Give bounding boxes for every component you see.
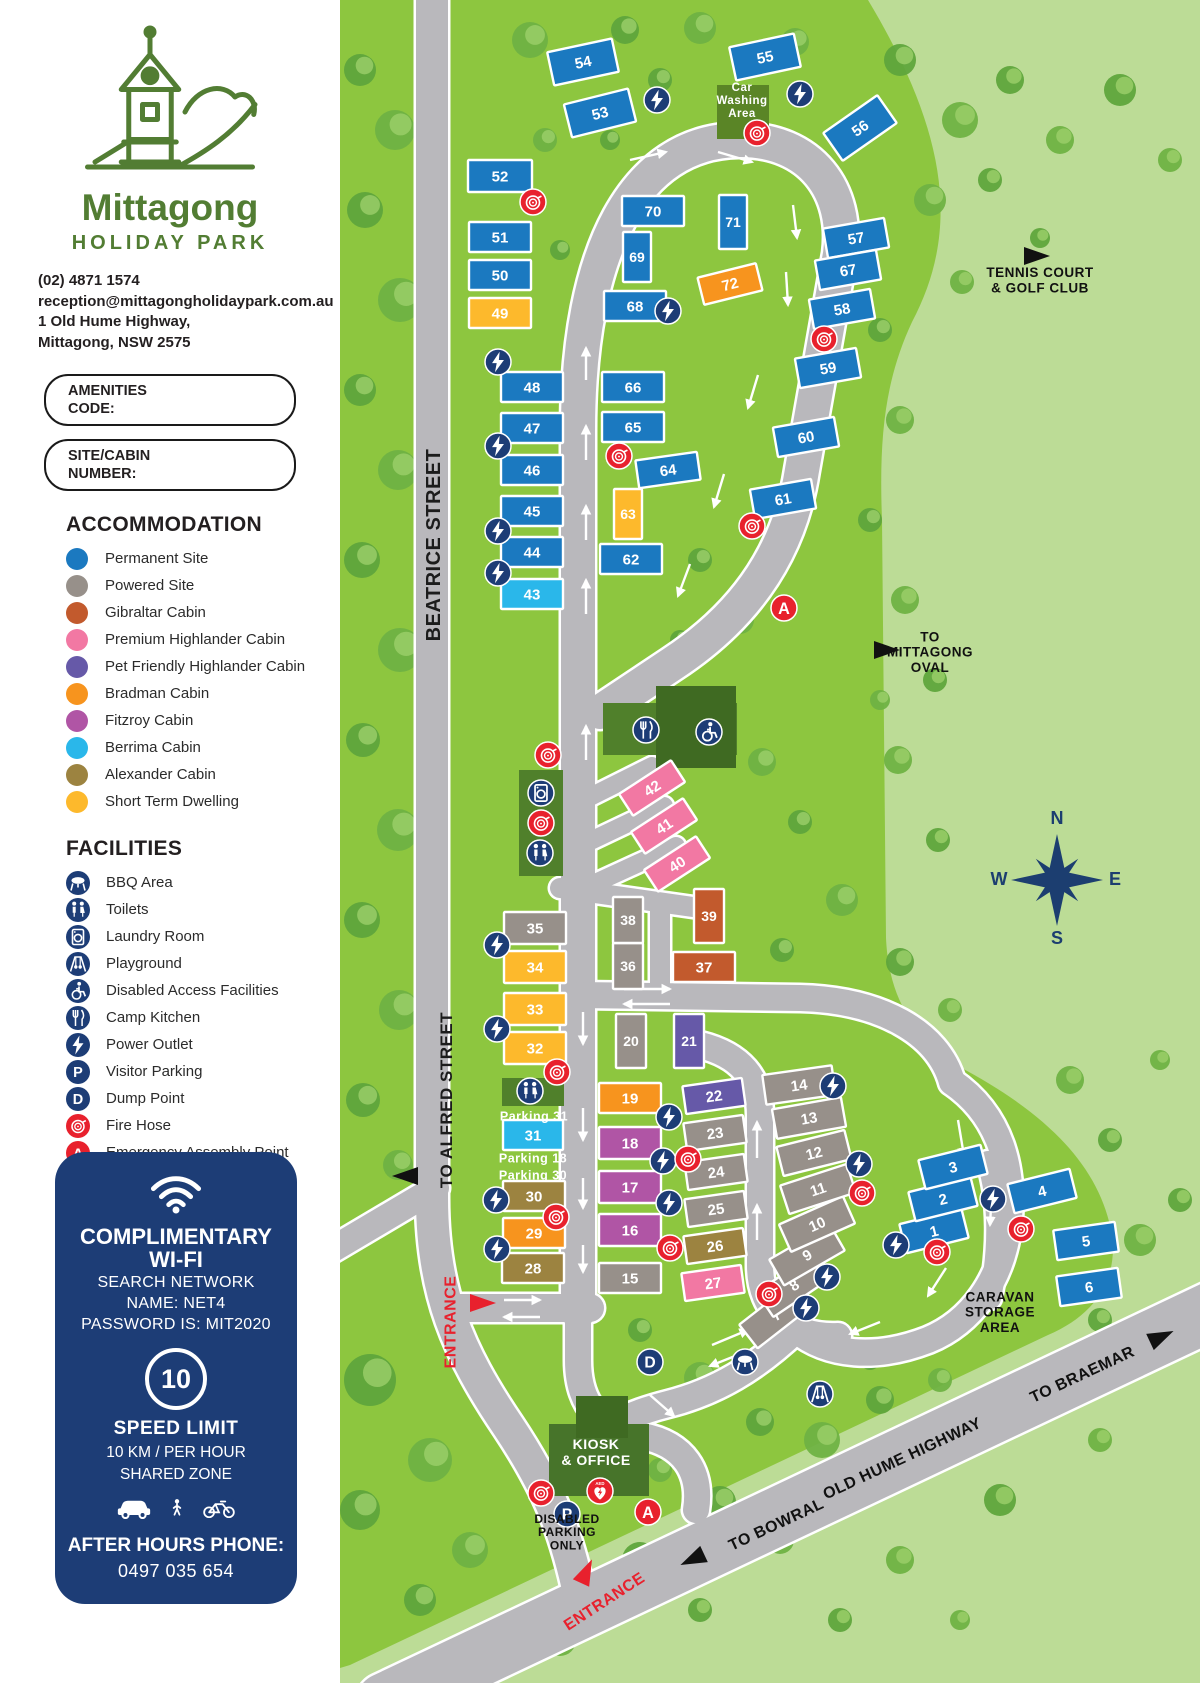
speed-limit-title: SPEED LIMIT [55, 1418, 297, 1440]
fire-icon [811, 326, 837, 352]
park-map-page: Mittagong HOLIDAY PARK (02) 4871 1574 re… [0, 0, 1200, 1683]
accommodation-item: Permanent Site [66, 545, 340, 572]
site-number-field: SITE/CABIN NUMBER: [44, 439, 296, 491]
svg-text:68: 68 [627, 298, 644, 315]
svg-text:64: 64 [659, 461, 679, 480]
facility-label: Playground [106, 955, 182, 972]
fire-icon [849, 1180, 875, 1206]
clock-tower-logo-icon [70, 22, 270, 182]
facility-item: Laundry Room [66, 923, 340, 950]
svg-text:29: 29 [526, 1225, 543, 1242]
facility-item: Fire Hose [66, 1112, 340, 1139]
accommodation-item: Pet Friendly Highlander Cabin [66, 653, 340, 680]
svg-text:26: 26 [706, 1237, 725, 1256]
fire-icon [528, 810, 554, 836]
toilets-icon [527, 840, 553, 866]
fire-icon [756, 1281, 782, 1307]
site-63: 63 [614, 489, 642, 539]
brand-name: Mittagong [0, 189, 340, 226]
email: reception@mittagongholidaypark.com.au [38, 292, 340, 313]
site-35: 35 [504, 912, 566, 944]
svg-text:46: 46 [524, 462, 541, 479]
fire-icon [535, 742, 561, 768]
svg-text:71: 71 [725, 214, 741, 230]
svg-text:37: 37 [696, 959, 713, 976]
site-34: 34 [504, 951, 566, 983]
after-hours-phone: 0497 035 654 [55, 1561, 297, 1582]
svg-text:62: 62 [623, 551, 640, 568]
fire-icon [528, 1480, 554, 1506]
power-icon [656, 1190, 682, 1216]
fire-icon [1008, 1216, 1034, 1242]
power-icon [66, 1033, 90, 1057]
svg-text:43: 43 [524, 586, 541, 603]
assembly-icon: A [771, 595, 797, 621]
power-icon [793, 1295, 819, 1321]
disabled-icon [696, 719, 722, 745]
site-50: 50 [469, 260, 531, 290]
accommodation-label: Alexander Cabin [105, 766, 216, 783]
svg-text:D: D [644, 1354, 655, 1371]
site-51: 51 [469, 222, 531, 252]
car-icon [115, 1496, 153, 1519]
power-icon [820, 1073, 846, 1099]
svg-text:50: 50 [492, 267, 509, 284]
svg-text:58: 58 [832, 300, 851, 320]
wifi-line-2: NAME: NET4 [55, 1295, 297, 1313]
contact-block: (02) 4871 1574 reception@mittagongholida… [38, 271, 340, 354]
fire-icon [520, 189, 546, 215]
logo [0, 22, 340, 187]
accommodation-item: Fitzroy Cabin [66, 707, 340, 734]
accommodation-swatch [66, 575, 88, 597]
accommodation-heading: ACCOMMODATION [66, 513, 340, 537]
site-28: 28 [502, 1253, 564, 1283]
site-45: 45 [501, 496, 563, 526]
shared-zone-icons [55, 1496, 297, 1519]
svg-text:44: 44 [524, 544, 541, 561]
site-48: 48 [501, 372, 563, 402]
facility-label: Visitor Parking [106, 1063, 202, 1080]
site-47: 47 [501, 413, 563, 443]
site-43: 43 [501, 579, 563, 609]
accommodation-swatch [66, 791, 88, 813]
map-label: TO ALFRED STREET [437, 1012, 456, 1188]
speed-limit-line-1: 10 KM / PER HOUR [55, 1444, 297, 1462]
accommodation-item: Short Term Dwelling [66, 788, 340, 815]
power-icon [846, 1151, 872, 1177]
wifi-icon [144, 1170, 208, 1214]
power-icon [485, 560, 511, 586]
facility-item: Playground [66, 950, 340, 977]
svg-text:22: 22 [705, 1087, 724, 1106]
accommodation-item: Gibraltar Cabin [66, 599, 340, 626]
svg-text:34: 34 [527, 959, 544, 976]
svg-text:30: 30 [526, 1188, 543, 1205]
site-33: 33 [504, 993, 566, 1025]
svg-text:51: 51 [492, 229, 509, 246]
power-icon [787, 81, 813, 107]
facility-label: Disabled Access Facilities [106, 982, 279, 999]
svg-text:13: 13 [799, 1109, 818, 1129]
site-31: 31 [503, 1120, 563, 1150]
park-map: 1234567891011121314151617181920212223242… [340, 0, 1200, 1683]
svg-text:67: 67 [838, 261, 857, 281]
accommodation-swatch [66, 656, 88, 678]
toilets-icon [66, 898, 90, 922]
site-37: 37 [673, 952, 735, 982]
site-15: 15 [599, 1263, 661, 1293]
svg-text:61: 61 [773, 490, 792, 510]
playground-icon [66, 952, 90, 976]
svg-text:A: A [778, 600, 790, 618]
svg-text:D: D [73, 1092, 83, 1108]
svg-text:31: 31 [525, 1127, 542, 1144]
accommodation-legend: Permanent SitePowered SiteGibraltar Cabi… [0, 545, 340, 815]
site-62: 62 [600, 544, 662, 574]
svg-text:55: 55 [755, 48, 775, 68]
site-46: 46 [501, 455, 563, 485]
svg-text:28: 28 [525, 1260, 542, 1277]
accommodation-label: Berrima Cabin [105, 739, 201, 756]
site-44: 44 [501, 537, 563, 567]
svg-text:59: 59 [818, 359, 837, 379]
site-49: 49 [469, 298, 531, 328]
power-icon [485, 518, 511, 544]
fire-icon [66, 1114, 90, 1138]
svg-text:35: 35 [527, 920, 544, 937]
accommodation-label: Premium Highlander Cabin [105, 631, 285, 648]
accommodation-label: Permanent Site [105, 550, 208, 567]
svg-text:36: 36 [620, 958, 636, 974]
svg-text:17: 17 [622, 1179, 639, 1196]
svg-text:25: 25 [707, 1200, 726, 1219]
facility-label: Laundry Room [106, 928, 204, 945]
power-icon [814, 1264, 840, 1290]
wifi-title: COMPLIMENTARY WI-FI [55, 1225, 297, 1271]
site-17: 17 [599, 1171, 661, 1203]
svg-text:23: 23 [706, 1124, 725, 1143]
svg-text:19: 19 [622, 1090, 639, 1107]
wifi-line-1: SEARCH NETWORK [55, 1274, 297, 1292]
site-65: 65 [602, 412, 664, 442]
bicycle-icon [201, 1497, 237, 1519]
facilities-legend: BBQ AreaToiletsLaundry RoomPlaygroundDis… [0, 869, 340, 1193]
accommodation-label: Powered Site [105, 577, 194, 594]
map-label: ENTRANCE [443, 1276, 460, 1369]
accommodation-swatch [66, 629, 88, 651]
address-2: Mittagong, NSW 2575 [38, 333, 340, 354]
accommodation-item: Alexander Cabin [66, 761, 340, 788]
facility-label: Power Outlet [106, 1036, 193, 1053]
svg-text:33: 33 [527, 1001, 544, 1018]
svg-text:52: 52 [492, 168, 509, 185]
svg-text:P: P [73, 1065, 83, 1081]
svg-text:60: 60 [796, 428, 815, 448]
power-icon [484, 932, 510, 958]
site-21: 21 [674, 1014, 704, 1068]
svg-text:39: 39 [701, 908, 717, 924]
accommodation-item: Berrima Cabin [66, 734, 340, 761]
fire-icon [924, 1239, 950, 1265]
bbq-icon [732, 1349, 758, 1375]
site-20: 20 [616, 1014, 646, 1068]
svg-text:48: 48 [524, 379, 541, 396]
dump-icon: D [637, 1349, 663, 1375]
brand-subtitle: HOLIDAY PARK [0, 232, 340, 255]
accommodation-label: Short Term Dwelling [105, 793, 239, 810]
svg-text:S: S [1051, 928, 1063, 948]
facility-item: BBQ Area [66, 869, 340, 896]
fire-icon [739, 513, 765, 539]
map-label: Parking 18 [499, 1151, 567, 1165]
power-icon [484, 1236, 510, 1262]
facility-item: PVisitor Parking [66, 1058, 340, 1085]
accommodation-swatch [66, 683, 88, 705]
map-label: Parking 30 [499, 1168, 567, 1182]
defib-icon: AED [587, 1478, 613, 1504]
accommodation-label: Fitzroy Cabin [105, 712, 193, 729]
site-52: 52 [468, 160, 532, 192]
facility-label: Toilets [106, 901, 149, 918]
parking-icon: P [66, 1060, 90, 1084]
accommodation-item: Bradman Cabin [66, 680, 340, 707]
fire-icon [544, 1059, 570, 1085]
accommodation-swatch [66, 710, 88, 732]
amenities-code-field: AMENITIES CODE: [44, 374, 296, 426]
svg-text:A: A [642, 1504, 654, 1522]
site-71: 71 [719, 195, 747, 249]
svg-text:65: 65 [625, 419, 642, 436]
facility-item: DDump Point [66, 1085, 340, 1112]
bbq-icon [66, 871, 90, 895]
fire-icon [675, 1146, 701, 1172]
facility-label: Camp Kitchen [106, 1009, 200, 1026]
kitchen-icon [633, 717, 659, 743]
svg-text:38: 38 [620, 912, 636, 928]
svg-text:57: 57 [846, 229, 865, 249]
assembly-icon: A [635, 1499, 661, 1525]
svg-text:18: 18 [622, 1135, 639, 1152]
wifi-card: COMPLIMENTARY WI-FI SEARCH NETWORK NAME:… [55, 1152, 297, 1604]
svg-text:24: 24 [707, 1163, 727, 1182]
power-icon [655, 298, 681, 324]
accommodation-item: Powered Site [66, 572, 340, 599]
power-icon [650, 1148, 676, 1174]
svg-text:27: 27 [704, 1274, 723, 1293]
svg-text:49: 49 [492, 305, 509, 322]
map-label: TENNIS COURT& GOLF CLUB [986, 265, 1094, 295]
svg-text:32: 32 [527, 1040, 544, 1057]
site-70: 70 [622, 196, 684, 226]
power-icon [483, 1187, 509, 1213]
accommodation-swatch [66, 548, 88, 570]
facility-item: Power Outlet [66, 1031, 340, 1058]
power-icon [485, 349, 511, 375]
speed-limit-sign: 10 [145, 1348, 207, 1410]
site-39: 39 [694, 889, 724, 943]
svg-text:15: 15 [622, 1270, 639, 1287]
facility-item: Disabled Access Facilities [66, 977, 340, 1004]
svg-text:70: 70 [645, 203, 662, 220]
accommodation-item: Premium Highlander Cabin [66, 626, 340, 653]
power-icon [485, 433, 511, 459]
pedestrian-icon [167, 1498, 187, 1518]
svg-text:W: W [991, 869, 1008, 889]
power-icon [980, 1186, 1006, 1212]
accommodation-swatch [66, 602, 88, 624]
power-icon [644, 87, 670, 113]
sidebar: Mittagong HOLIDAY PARK (02) 4871 1574 re… [0, 0, 340, 1683]
facility-label: Fire Hose [106, 1117, 171, 1134]
svg-text:14: 14 [790, 1076, 810, 1095]
speed-limit-line-2: SHARED ZONE [55, 1466, 297, 1484]
accommodation-label: Pet Friendly Highlander Cabin [105, 658, 305, 675]
site-16: 16 [599, 1214, 661, 1246]
map-label: BEATRICE STREET [423, 449, 445, 642]
dump-icon: D [66, 1087, 90, 1111]
fire-icon [744, 120, 770, 146]
site-66: 66 [602, 372, 664, 402]
facilities-heading: FACILITIES [66, 837, 340, 861]
svg-text:47: 47 [524, 420, 541, 437]
svg-text:69: 69 [629, 249, 645, 265]
fire-icon [657, 1235, 683, 1261]
site-38: 38 [613, 897, 643, 943]
phone: (02) 4871 1574 [38, 271, 340, 292]
map-label: Parking 31 [500, 1109, 568, 1123]
park-map-svg: 1234567891011121314151617181920212223242… [340, 0, 1200, 1683]
svg-text:16: 16 [622, 1222, 639, 1239]
accommodation-swatch [66, 737, 88, 759]
fire-icon [543, 1204, 569, 1230]
fire-icon [606, 443, 632, 469]
laundry-icon [66, 925, 90, 949]
svg-text:N: N [1051, 808, 1064, 828]
site-69: 69 [623, 232, 651, 282]
svg-text:20: 20 [623, 1033, 639, 1049]
playground-icon [807, 1381, 833, 1407]
address-1: 1 Old Hume Highway, [38, 312, 340, 333]
svg-text:63: 63 [620, 506, 636, 522]
wifi-line-3: PASSWORD IS: MIT2020 [55, 1316, 297, 1334]
svg-text:45: 45 [524, 503, 541, 520]
accommodation-label: Bradman Cabin [105, 685, 209, 702]
facility-label: Dump Point [106, 1090, 184, 1107]
after-hours-label: AFTER HOURS PHONE: [55, 1535, 297, 1557]
svg-text:E: E [1109, 869, 1121, 889]
site-19: 19 [599, 1083, 661, 1113]
facility-item: Toilets [66, 896, 340, 923]
facility-label: BBQ Area [106, 874, 173, 891]
site-36: 36 [613, 943, 643, 989]
laundry-icon [528, 780, 554, 806]
svg-text:AED: AED [595, 1481, 604, 1486]
facility-item: Camp Kitchen [66, 1004, 340, 1031]
svg-text:21: 21 [681, 1033, 697, 1049]
accommodation-swatch [66, 764, 88, 786]
disabled-icon [66, 979, 90, 1003]
kitchen-icon [66, 1006, 90, 1030]
power-icon [484, 1016, 510, 1042]
power-icon [883, 1232, 909, 1258]
power-icon [656, 1104, 682, 1130]
svg-text:66: 66 [625, 379, 642, 396]
accommodation-label: Gibraltar Cabin [105, 604, 206, 621]
toilets-icon [517, 1078, 543, 1104]
